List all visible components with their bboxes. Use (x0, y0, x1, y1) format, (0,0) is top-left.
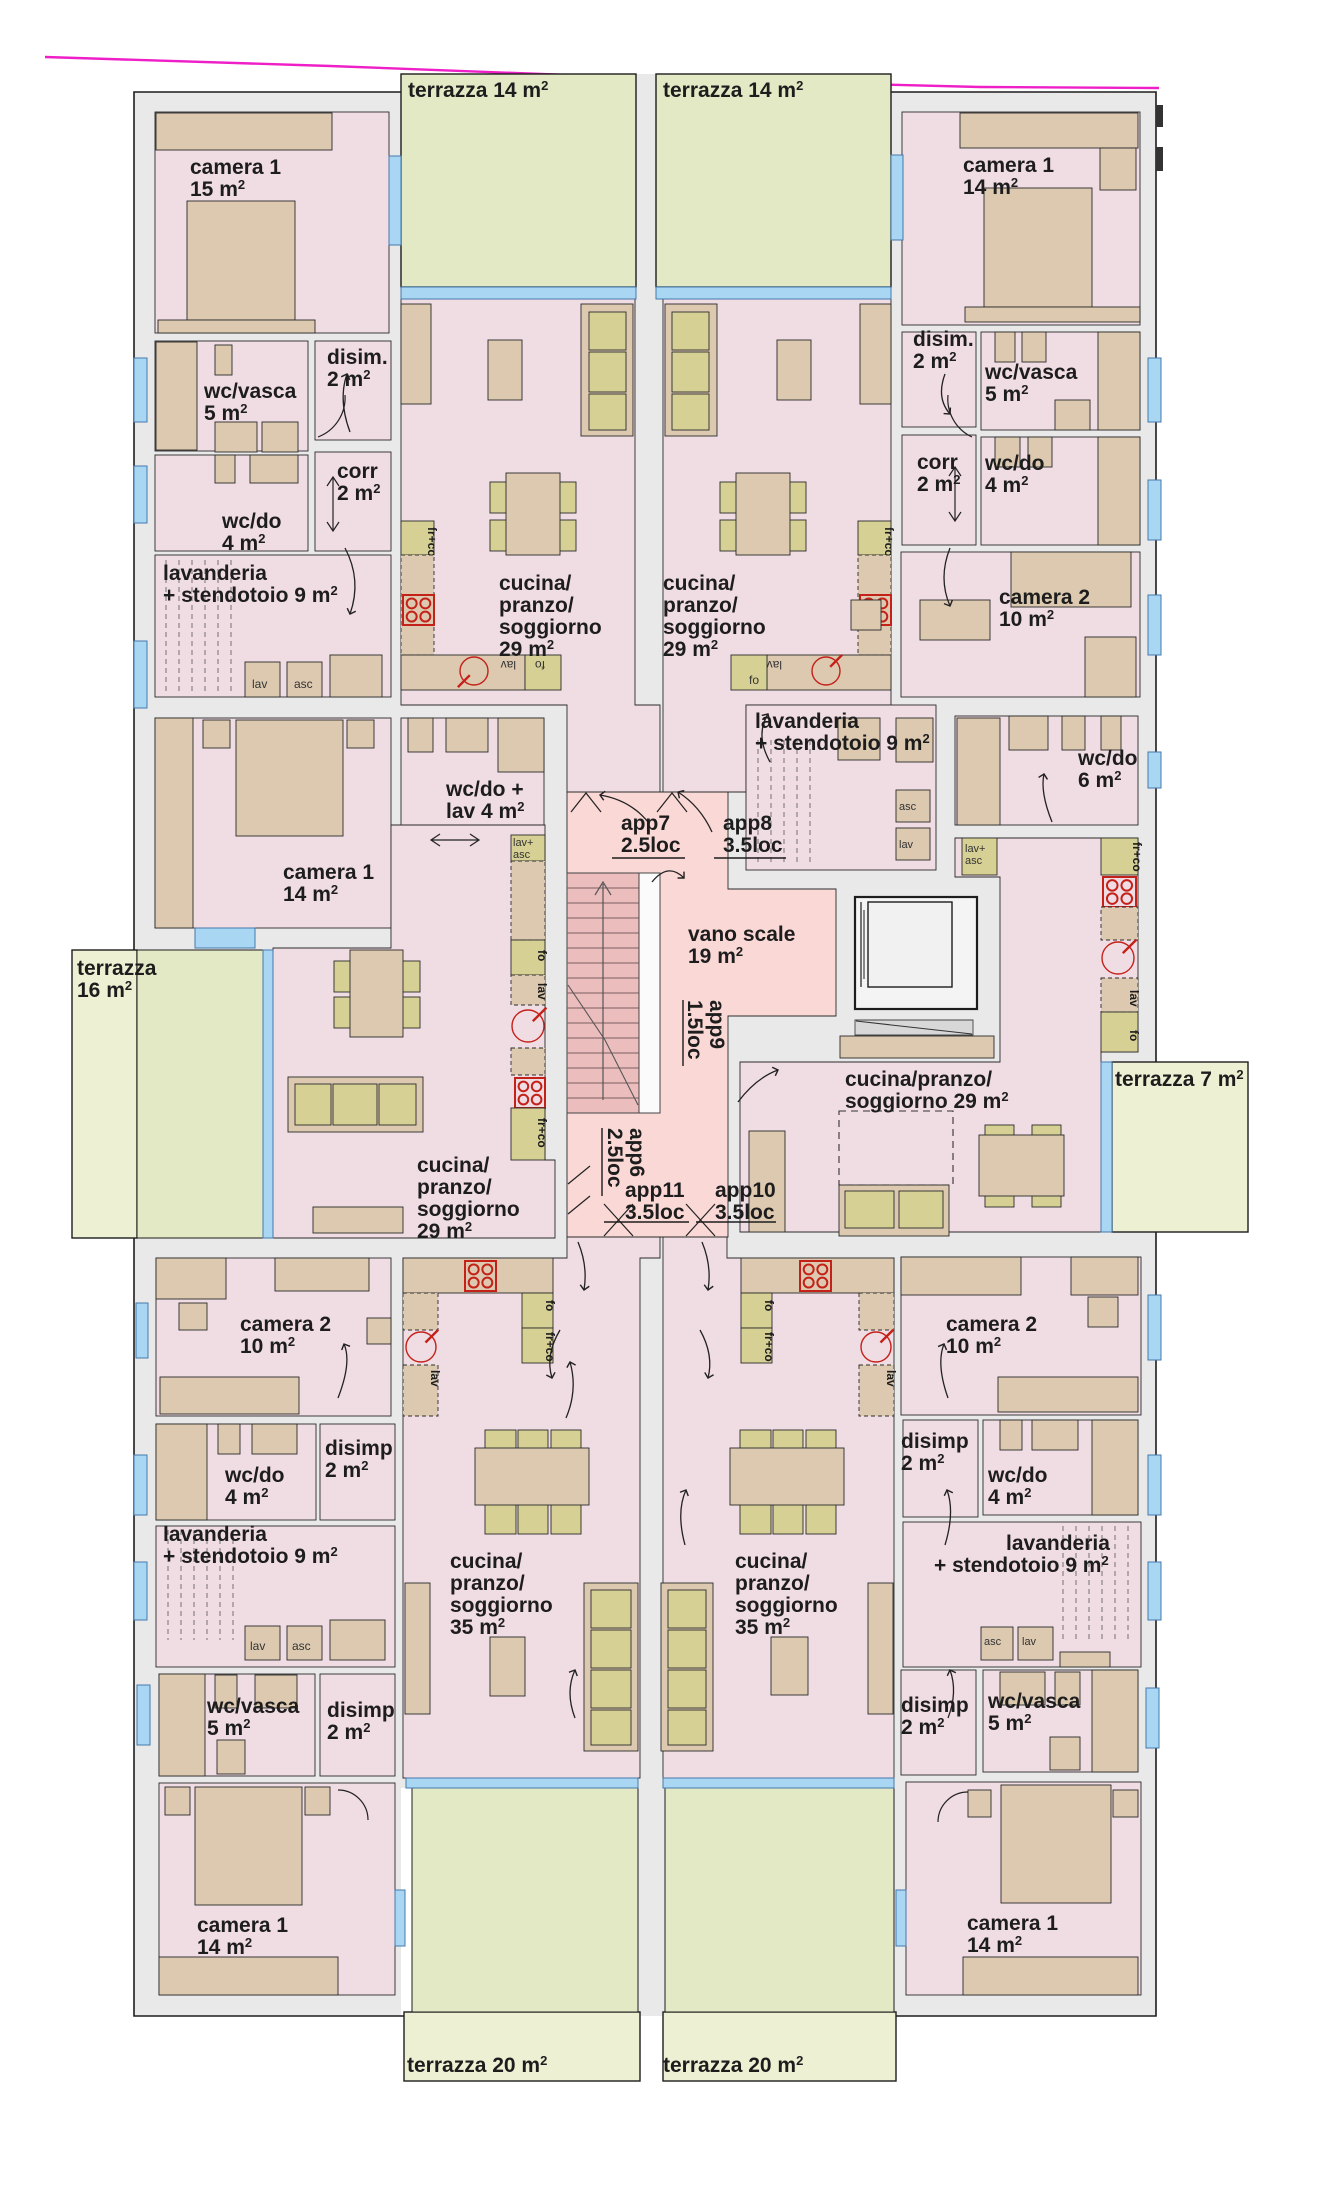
svg-text:app103.5loc: app103.5loc (715, 1179, 776, 1224)
svg-text:lav: lav (252, 677, 267, 691)
svg-text:asc: asc (294, 677, 313, 691)
svg-text:asc: asc (899, 801, 917, 813)
svg-text:lav+: lav+ (513, 837, 534, 849)
svg-text:lav: lav (428, 1370, 442, 1387)
svg-text:lav: lav (1022, 1636, 1037, 1648)
svg-text:lav: lav (899, 839, 914, 851)
svg-text:2.5loc: 2.5loc (603, 1128, 626, 1188)
svg-text:fo: fo (762, 1300, 776, 1311)
svg-text:fo: fo (1127, 1030, 1141, 1041)
svg-text:fr+co: fr+co (882, 527, 896, 557)
svg-text:terrazza 20 m2: terrazza 20 m2 (663, 2053, 803, 2077)
svg-text:terrazza 20 m2: terrazza 20 m2 (407, 2053, 547, 2077)
svg-text:lavanderia: lavanderia (1006, 1532, 1110, 1555)
svg-text:fr+co: fr+co (1130, 842, 1144, 872)
svg-text:fo: fo (749, 673, 759, 687)
svg-text:fo: fo (535, 950, 549, 961)
svg-text:fr+co: fr+co (762, 1332, 776, 1362)
svg-text:lav: lav (884, 1370, 898, 1387)
svg-text:asc: asc (513, 849, 531, 861)
svg-text:fo: fo (543, 1300, 557, 1311)
svg-text:lav: lav (535, 983, 549, 1000)
svg-text:app113.5loc: app113.5loc (625, 1179, 685, 1224)
svg-text:cucina/pranzo/soggiorno 29 m2: cucina/pranzo/soggiorno 29 m2 (845, 1068, 1009, 1113)
svg-text:lav+: lav+ (965, 843, 986, 855)
svg-text:wc/do +lav 4 m2: wc/do +lav 4 m2 (445, 778, 524, 823)
svg-text:lav: lav (767, 658, 782, 672)
svg-text:terrazza 14 m2: terrazza 14 m2 (408, 78, 548, 102)
svg-text:asc: asc (984, 1636, 1002, 1648)
svg-text:terrazza 14 m2: terrazza 14 m2 (663, 78, 803, 102)
svg-text:app9: app9 (705, 1000, 728, 1049)
svg-text:lav: lav (1127, 990, 1141, 1007)
svg-text:fr+co: fr+co (535, 1118, 549, 1148)
svg-text:terrazza 7 m2: terrazza 7 m2 (1115, 1067, 1244, 1091)
svg-text:app6: app6 (625, 1128, 648, 1177)
svg-text:lav: lav (250, 1639, 265, 1653)
svg-text:asc: asc (965, 855, 983, 867)
svg-text:fr+co: fr+co (425, 527, 439, 557)
svg-text:1.5loc: 1.5loc (683, 1000, 706, 1060)
svg-text:asc: asc (292, 1639, 311, 1653)
svg-text:+ stendotoio 9 m2: + stendotoio 9 m2 (934, 1553, 1109, 1577)
